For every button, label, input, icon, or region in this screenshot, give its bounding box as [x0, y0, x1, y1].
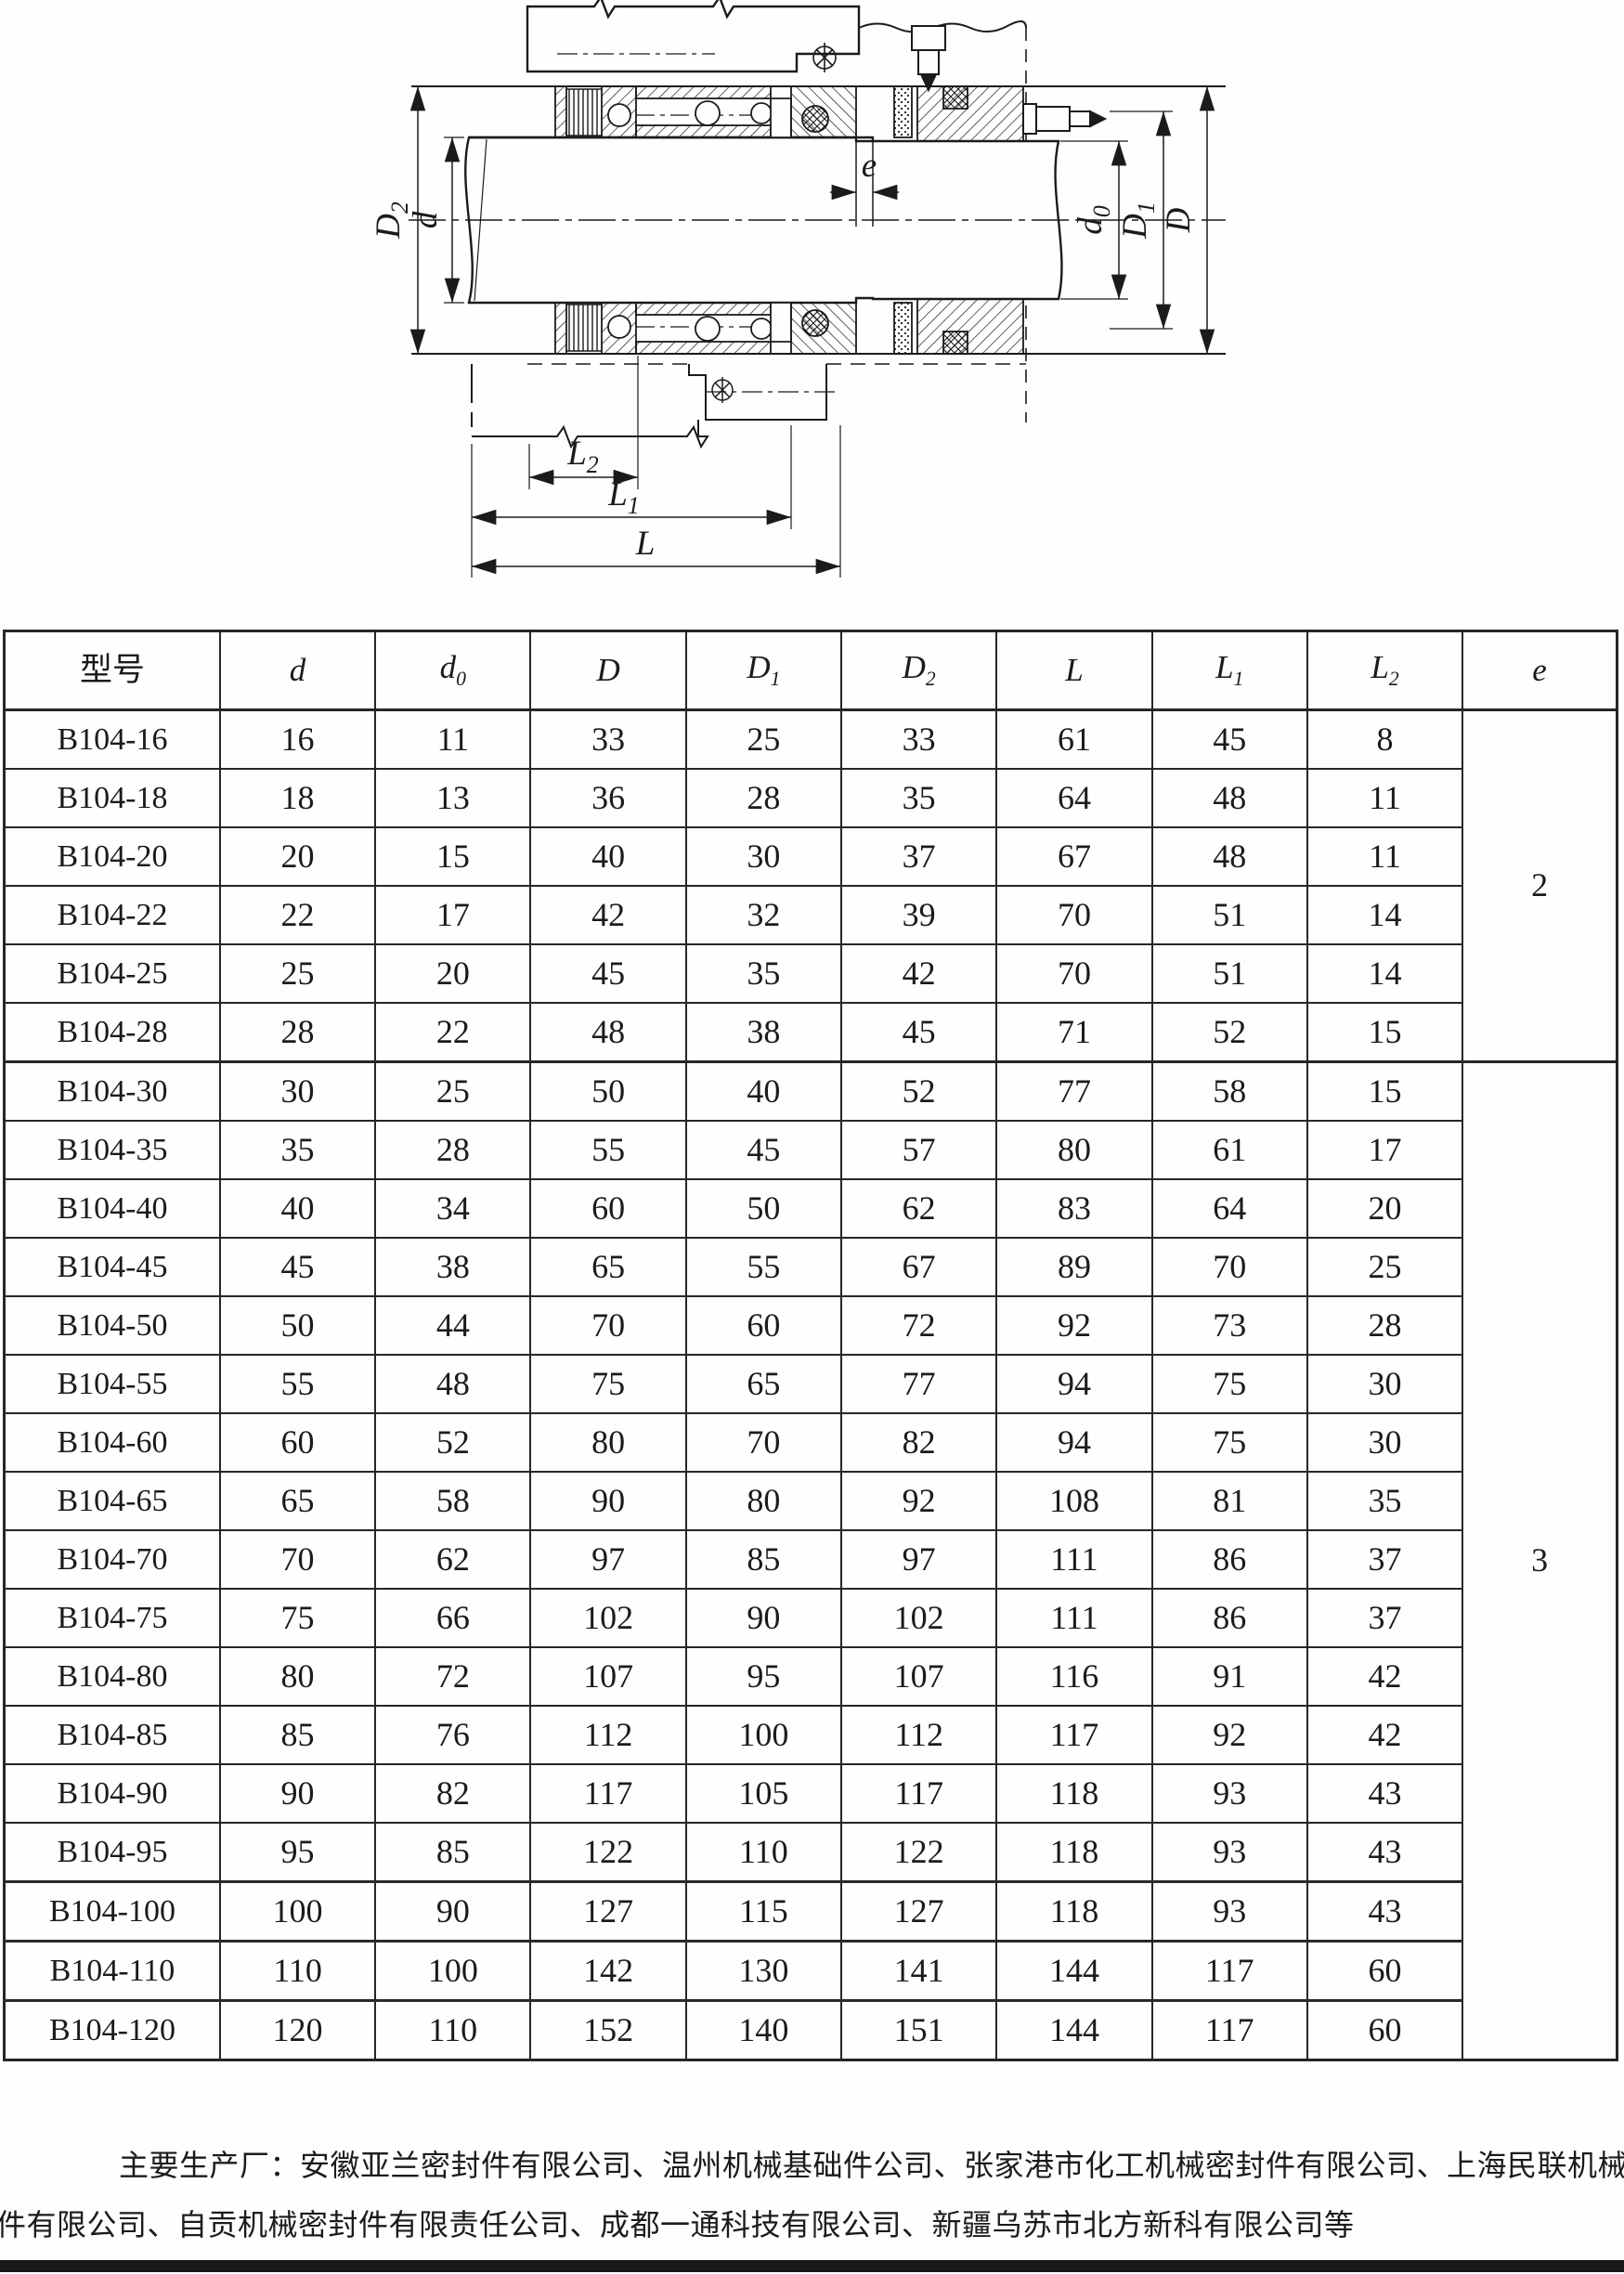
table-row: B104-9595851221101221189343	[5, 1823, 1618, 1882]
value-cell: 35	[220, 1121, 375, 1179]
value-cell: 28	[1307, 1296, 1462, 1355]
value-cell: 66	[375, 1589, 530, 1647]
header-model: 型号	[5, 631, 220, 710]
table-row: B104-181813362835644811	[5, 769, 1618, 827]
value-cell: 112	[841, 1706, 996, 1764]
value-cell: 77	[841, 1355, 996, 1413]
value-cell: 15	[1307, 1003, 1462, 1062]
value-cell: 52	[841, 1062, 996, 1122]
table-row: B104-161611332533614582	[5, 710, 1618, 770]
table-container: 型号 d d0 D D1 D2 L L1 L2 e B104-161611332…	[3, 630, 1618, 2061]
value-cell: 100	[375, 1942, 530, 2001]
value-cell: 43	[1307, 1823, 1462, 1882]
value-cell: 35	[1307, 1472, 1462, 1530]
value-cell: 80	[996, 1121, 1151, 1179]
model-cell: B104-28	[5, 1003, 220, 1062]
value-cell: 51	[1152, 886, 1307, 944]
value-cell: 112	[530, 1706, 685, 1764]
dim-label-D: D	[1160, 207, 1198, 233]
value-cell: 90	[686, 1589, 841, 1647]
upper-seal-assembly	[555, 86, 1105, 141]
value-cell: 75	[220, 1589, 375, 1647]
value-cell: 11	[1307, 769, 1462, 827]
value-cell: 91	[1152, 1647, 1307, 1706]
value-cell: 45	[841, 1003, 996, 1062]
table-row: B104-202015403037674811	[5, 827, 1618, 886]
value-cell: 64	[996, 769, 1151, 827]
spring-coils	[566, 89, 602, 136]
value-cell: 76	[375, 1706, 530, 1764]
value-cell: 64	[1152, 1179, 1307, 1238]
value-cell: 13	[375, 769, 530, 827]
lower-housing	[472, 364, 1026, 447]
value-cell: 86	[1152, 1589, 1307, 1647]
value-cell: 25	[375, 1062, 530, 1122]
value-cell: 100	[220, 1882, 375, 1942]
value-cell: 60	[530, 1179, 685, 1238]
table-body: B104-161611332533614582B104-181813362835…	[5, 710, 1618, 2060]
value-cell: 28	[220, 1003, 375, 1062]
header-D2: D2	[841, 631, 996, 710]
value-cell: 107	[841, 1647, 996, 1706]
value-cell: 32	[686, 886, 841, 944]
table-row: B104-282822483845715215	[5, 1003, 1618, 1062]
table-header: 型号 d d0 D D1 D2 L L1 L2 e	[5, 631, 1618, 710]
model-cell: B104-120	[5, 2001, 220, 2060]
table-row: B104-12012011015214015114411760	[5, 2001, 1618, 2060]
value-cell: 60	[220, 1413, 375, 1472]
value-cell: 67	[996, 827, 1151, 886]
value-cell: 75	[530, 1355, 685, 1413]
value-cell: 55	[220, 1355, 375, 1413]
value-cell: 33	[530, 710, 685, 770]
value-cell: 65	[220, 1472, 375, 1530]
e-group-cell: 2	[1462, 710, 1617, 1062]
model-cell: B104-20	[5, 827, 220, 886]
value-cell: 48	[1152, 769, 1307, 827]
header-D: D	[530, 631, 685, 710]
dim-label-L: L	[635, 525, 656, 563]
value-cell: 61	[996, 710, 1151, 770]
model-cell: B104-100	[5, 1882, 220, 1942]
value-cell: 93	[1152, 1823, 1307, 1882]
value-cell: 90	[220, 1764, 375, 1823]
header-D1: D1	[686, 631, 841, 710]
value-cell: 35	[686, 944, 841, 1003]
value-cell: 25	[686, 710, 841, 770]
header-e: e	[1462, 631, 1617, 710]
model-cell: B104-50	[5, 1296, 220, 1355]
value-cell: 39	[841, 886, 996, 944]
table-row: B104-11011010014213014114411760	[5, 1942, 1618, 2001]
value-cell: 17	[1307, 1121, 1462, 1179]
model-cell: B104-35	[5, 1121, 220, 1179]
value-cell: 22	[220, 886, 375, 944]
table-row: B104-222217423239705114	[5, 886, 1618, 944]
page-bottom-rule	[0, 2260, 1624, 2272]
table-row: B104-8585761121001121179242	[5, 1706, 1618, 1764]
model-cell: B104-75	[5, 1589, 220, 1647]
value-cell: 16	[220, 710, 375, 770]
value-cell: 77	[996, 1062, 1151, 1122]
value-cell: 92	[996, 1296, 1151, 1355]
dimension-lines-horizontal	[472, 356, 840, 578]
value-cell: 89	[996, 1238, 1151, 1296]
value-cell: 38	[375, 1238, 530, 1296]
table-row: B104-7070629785971118637	[5, 1530, 1618, 1589]
value-cell: 11	[1307, 827, 1462, 886]
value-cell: 42	[841, 944, 996, 1003]
value-cell: 94	[996, 1413, 1151, 1472]
value-cell: 105	[686, 1764, 841, 1823]
value-cell: 151	[841, 2001, 996, 2060]
value-cell: 90	[530, 1472, 685, 1530]
value-cell: 82	[841, 1413, 996, 1472]
value-cell: 40	[220, 1179, 375, 1238]
value-cell: 51	[1152, 944, 1307, 1003]
value-cell: 52	[375, 1413, 530, 1472]
value-cell: 67	[841, 1238, 996, 1296]
dimension-table: 型号 d d0 D D1 D2 L L1 L2 e B104-161611332…	[3, 630, 1618, 2061]
value-cell: 100	[686, 1706, 841, 1764]
value-cell: 61	[1152, 1121, 1307, 1179]
value-cell: 122	[530, 1823, 685, 1882]
model-cell: B104-16	[5, 710, 220, 770]
value-cell: 80	[220, 1647, 375, 1706]
value-cell: 102	[841, 1589, 996, 1647]
model-cell: B104-65	[5, 1472, 220, 1530]
value-cell: 85	[375, 1823, 530, 1882]
model-cell: B104-55	[5, 1355, 220, 1413]
table-row: B104-808072107951071169142	[5, 1647, 1618, 1706]
value-cell: 15	[1307, 1062, 1462, 1122]
value-cell: 50	[220, 1296, 375, 1355]
model-cell: B104-45	[5, 1238, 220, 1296]
model-cell: B104-22	[5, 886, 220, 944]
value-cell: 45	[686, 1121, 841, 1179]
value-cell: 117	[841, 1764, 996, 1823]
value-cell: 120	[220, 2001, 375, 2060]
model-cell: B104-30	[5, 1062, 220, 1122]
value-cell: 102	[530, 1589, 685, 1647]
model-cell: B104-80	[5, 1647, 220, 1706]
manufacturers-note: 主要生产厂：安徽亚兰密封件有限公司、温州机械基础件公司、张家港市化工机械密封件有…	[0, 2136, 1624, 2255]
value-cell: 85	[220, 1706, 375, 1764]
value-cell: 117	[1152, 1942, 1307, 2001]
dim-label-d0: d0	[1072, 205, 1115, 235]
value-cell: 14	[1307, 886, 1462, 944]
value-cell: 70	[996, 886, 1151, 944]
model-cell: B104-18	[5, 769, 220, 827]
dim-label-L1: L1	[607, 475, 640, 519]
value-cell: 118	[996, 1823, 1151, 1882]
table-row: B104-3030255040527758153	[5, 1062, 1618, 1122]
value-cell: 42	[530, 886, 685, 944]
value-cell: 15	[375, 827, 530, 886]
e-group-cell: 3	[1462, 1062, 1617, 2060]
value-cell: 72	[841, 1296, 996, 1355]
value-cell: 93	[1152, 1882, 1307, 1942]
value-cell: 107	[530, 1647, 685, 1706]
value-cell: 117	[1152, 2001, 1307, 2060]
value-cell: 48	[530, 1003, 685, 1062]
value-cell: 127	[530, 1882, 685, 1942]
manufacturers-note-line1: 主要生产厂：安徽亚兰密封件有限公司、温州机械基础件公司、张家港市化工机械密封件有…	[0, 2136, 1624, 2195]
value-cell: 60	[686, 1296, 841, 1355]
seal-cross-section-diagram: D2 d e d0 D1 D L2 L1 L	[0, 0, 1624, 629]
value-cell: 18	[220, 769, 375, 827]
value-cell: 65	[686, 1355, 841, 1413]
value-cell: 37	[1307, 1589, 1462, 1647]
value-cell: 36	[530, 769, 685, 827]
value-cell: 30	[1307, 1413, 1462, 1472]
value-cell: 142	[530, 1942, 685, 2001]
value-cell: 115	[686, 1882, 841, 1942]
value-cell: 55	[530, 1121, 685, 1179]
table-row: B104-9090821171051171189343	[5, 1764, 1618, 1823]
value-cell: 116	[996, 1647, 1151, 1706]
value-cell: 65	[530, 1238, 685, 1296]
value-cell: 28	[375, 1121, 530, 1179]
header-L1: L1	[1152, 631, 1307, 710]
header-row: 型号 d d0 D D1 D2 L L1 L2 e	[5, 631, 1618, 710]
value-cell: 71	[996, 1003, 1151, 1062]
value-cell: 110	[375, 2001, 530, 2060]
value-cell: 90	[375, 1882, 530, 1942]
value-cell: 144	[996, 2001, 1151, 2060]
header-L2: L2	[1307, 631, 1462, 710]
value-cell: 70	[530, 1296, 685, 1355]
value-cell: 97	[530, 1530, 685, 1589]
gland-stud	[912, 26, 945, 90]
value-cell: 40	[530, 827, 685, 886]
table-row: B104-6565589080921088135	[5, 1472, 1618, 1530]
value-cell: 118	[996, 1882, 1151, 1942]
value-cell: 95	[686, 1647, 841, 1706]
value-cell: 108	[996, 1472, 1151, 1530]
value-cell: 93	[1152, 1764, 1307, 1823]
value-cell: 70	[220, 1530, 375, 1589]
value-cell: 37	[1307, 1530, 1462, 1589]
value-cell: 72	[375, 1647, 530, 1706]
value-cell: 111	[996, 1530, 1151, 1589]
value-cell: 82	[375, 1764, 530, 1823]
value-cell: 43	[1307, 1764, 1462, 1823]
table-row: B104-505044706072927328	[5, 1296, 1618, 1355]
table-row: B104-555548756577947530	[5, 1355, 1618, 1413]
table-row: B104-404034605062836420	[5, 1179, 1618, 1238]
value-cell: 58	[1152, 1062, 1307, 1122]
value-cell: 37	[841, 827, 996, 886]
value-cell: 80	[530, 1413, 685, 1472]
table-row: B104-757566102901021118637	[5, 1589, 1618, 1647]
value-cell: 48	[1152, 827, 1307, 886]
model-cell: B104-95	[5, 1823, 220, 1882]
value-cell: 141	[841, 1942, 996, 2001]
value-cell: 92	[1152, 1706, 1307, 1764]
model-cell: B104-40	[5, 1179, 220, 1238]
value-cell: 117	[530, 1764, 685, 1823]
value-cell: 22	[375, 1003, 530, 1062]
value-cell: 122	[841, 1823, 996, 1882]
value-cell: 58	[375, 1472, 530, 1530]
value-cell: 44	[375, 1296, 530, 1355]
value-cell: 30	[220, 1062, 375, 1122]
value-cell: 20	[1307, 1179, 1462, 1238]
value-cell: 25	[220, 944, 375, 1003]
table-row: B104-454538655567897025	[5, 1238, 1618, 1296]
value-cell: 52	[1152, 1003, 1307, 1062]
value-cell: 57	[841, 1121, 996, 1179]
value-cell: 117	[996, 1706, 1151, 1764]
value-cell: 60	[1307, 2001, 1462, 2060]
table-row: B104-100100901271151271189343	[5, 1882, 1618, 1942]
dim-label-d: d	[407, 211, 445, 228]
model-cell: B104-70	[5, 1530, 220, 1589]
document-page: D2 d e d0 D1 D L2 L1 L	[0, 0, 1624, 2274]
value-cell: 81	[1152, 1472, 1307, 1530]
value-cell: 20	[375, 944, 530, 1003]
value-cell: 94	[996, 1355, 1151, 1413]
value-cell: 75	[1152, 1355, 1307, 1413]
value-cell: 45	[530, 944, 685, 1003]
dim-label-L2: L2	[566, 435, 599, 478]
value-cell: 28	[686, 769, 841, 827]
value-cell: 92	[841, 1472, 996, 1530]
table-row: B104-252520453542705114	[5, 944, 1618, 1003]
dim-label-D1: D1	[1116, 201, 1160, 240]
dim-label-e: e	[862, 147, 877, 185]
value-cell: 60	[1307, 1942, 1462, 2001]
value-cell: 152	[530, 2001, 685, 2060]
model-cell: B104-85	[5, 1706, 220, 1764]
value-cell: 55	[686, 1238, 841, 1296]
model-cell: B104-90	[5, 1764, 220, 1823]
value-cell: 42	[1307, 1647, 1462, 1706]
value-cell: 38	[686, 1003, 841, 1062]
value-cell: 130	[686, 1942, 841, 2001]
value-cell: 34	[375, 1179, 530, 1238]
value-cell: 25	[1307, 1238, 1462, 1296]
value-cell: 73	[1152, 1296, 1307, 1355]
header-d: d	[220, 631, 375, 710]
lower-seal-assembly	[555, 299, 1023, 354]
value-cell: 75	[1152, 1413, 1307, 1472]
value-cell: 62	[375, 1530, 530, 1589]
value-cell: 48	[375, 1355, 530, 1413]
value-cell: 20	[220, 827, 375, 886]
value-cell: 70	[996, 944, 1151, 1003]
value-cell: 95	[220, 1823, 375, 1882]
value-cell: 110	[686, 1823, 841, 1882]
value-cell: 62	[841, 1179, 996, 1238]
value-cell: 70	[1152, 1238, 1307, 1296]
value-cell: 11	[375, 710, 530, 770]
table-row: B104-606052807082947530	[5, 1413, 1618, 1472]
header-L: L	[996, 631, 1151, 710]
value-cell: 83	[996, 1179, 1151, 1238]
value-cell: 144	[996, 1942, 1151, 2001]
value-cell: 118	[996, 1764, 1151, 1823]
value-cell: 110	[220, 1942, 375, 2001]
value-cell: 33	[841, 710, 996, 770]
value-cell: 111	[996, 1589, 1151, 1647]
fitting-symbol-top	[813, 43, 836, 72]
value-cell: 50	[686, 1179, 841, 1238]
value-cell: 85	[686, 1530, 841, 1589]
value-cell: 30	[1307, 1355, 1462, 1413]
value-cell: 42	[1307, 1706, 1462, 1764]
value-cell: 97	[841, 1530, 996, 1589]
value-cell: 45	[220, 1238, 375, 1296]
value-cell: 30	[686, 827, 841, 886]
value-cell: 86	[1152, 1530, 1307, 1589]
value-cell: 40	[686, 1062, 841, 1122]
value-cell: 43	[1307, 1882, 1462, 1942]
manufacturers-note-line2: 件有限公司、自贡机械密封件有限责任公司、成都一通科技有限公司、新疆乌苏市北方新科…	[0, 2195, 1624, 2255]
value-cell: 14	[1307, 944, 1462, 1003]
fitting-symbol-bottom	[712, 377, 733, 403]
model-cell: B104-110	[5, 1942, 220, 2001]
value-cell: 140	[686, 2001, 841, 2060]
value-cell: 8	[1307, 710, 1462, 770]
model-cell: B104-60	[5, 1413, 220, 1472]
value-cell: 80	[686, 1472, 841, 1530]
table-row: B104-353528554557806117	[5, 1121, 1618, 1179]
value-cell: 50	[530, 1062, 685, 1122]
model-cell: B104-25	[5, 944, 220, 1003]
header-d0: d0	[375, 631, 530, 710]
value-cell: 127	[841, 1882, 996, 1942]
value-cell: 35	[841, 769, 996, 827]
value-cell: 70	[686, 1413, 841, 1472]
gland-bolt	[1023, 104, 1105, 134]
value-cell: 45	[1152, 710, 1307, 770]
value-cell: 17	[375, 886, 530, 944]
